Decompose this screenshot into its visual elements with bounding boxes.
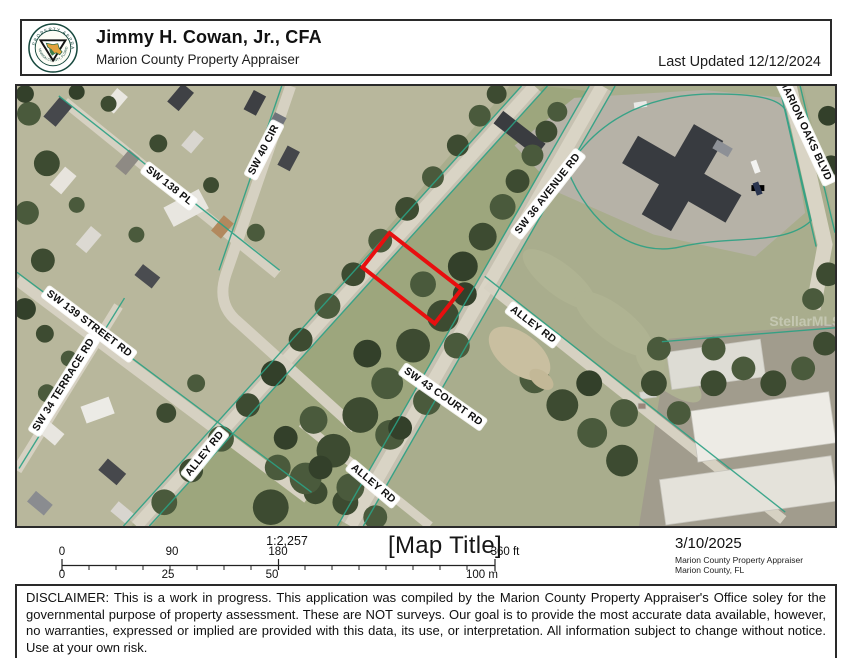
appraiser-name: Jimmy H. Cowan, Jr., CFA bbox=[96, 27, 322, 48]
map-canvas: StellarMLS SW 40 CIR SW 138 PL SW 139 ST… bbox=[15, 84, 837, 528]
property-appraiser-seal-icon: PROPERTY APPRAISER MARION COUNTY, FLORID… bbox=[28, 23, 78, 73]
aerial-imagery: StellarMLS bbox=[17, 86, 835, 526]
map-title: [Map Title] bbox=[388, 532, 502, 560]
scale-ft-tick: 180 bbox=[268, 546, 287, 558]
map-report-page: PROPERTY APPRAISER MARION COUNTY, FLORID… bbox=[0, 0, 852, 658]
scale-m-tick: 100 m bbox=[466, 569, 498, 581]
scale-m-tick: 0 bbox=[59, 569, 65, 581]
map-credits: 3/10/2025 Marion County Property Apprais… bbox=[675, 535, 803, 575]
credit-agency: Marion County Property Appraiser bbox=[675, 555, 803, 565]
header-bar: PROPERTY APPRAISER MARION COUNTY, FLORID… bbox=[20, 19, 832, 76]
last-updated-text: Last Updated 12/12/2024 bbox=[658, 54, 821, 70]
scale-bar-ruler bbox=[52, 559, 508, 572]
scale-ft-tick: 0 bbox=[59, 546, 65, 558]
credit-region: Marion County, FL bbox=[675, 565, 803, 575]
scale-m-tick: 25 bbox=[162, 569, 175, 581]
scale-ft-tick: 90 bbox=[166, 546, 179, 558]
office-title: Marion County Property Appraiser bbox=[96, 52, 299, 67]
scale-m-tick: 50 bbox=[266, 569, 279, 581]
map-date: 3/10/2025 bbox=[675, 535, 803, 552]
watermark-text: StellarMLS bbox=[769, 313, 835, 329]
disclaimer-text: DISCLAIMER: This is a work in progress. … bbox=[15, 584, 837, 658]
